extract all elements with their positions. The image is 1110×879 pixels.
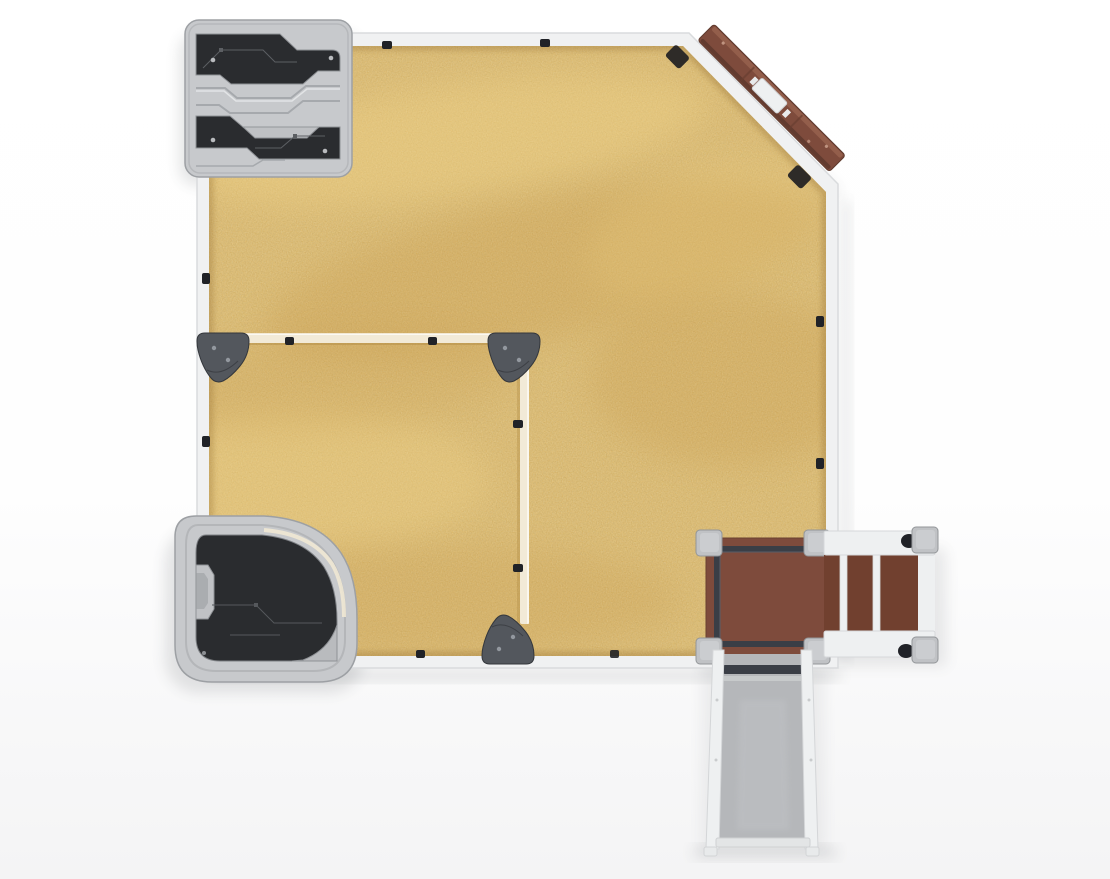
partition-v-shade xyxy=(517,338,520,624)
panel-rivet-dot xyxy=(202,651,206,655)
slide xyxy=(704,650,819,856)
steps-tread-area xyxy=(824,555,920,631)
slide-rail-screw xyxy=(808,699,811,702)
access-steps xyxy=(824,527,938,663)
slide-foot xyxy=(806,847,819,856)
slide-entry-lip xyxy=(721,676,805,681)
panel-rivet-dot xyxy=(211,138,216,143)
cap-screw-dot xyxy=(511,635,515,639)
wall-clip xyxy=(816,316,824,327)
cap-screw-dot xyxy=(226,358,230,362)
quarter-play-panel-bottom-left xyxy=(175,516,357,682)
wall-clip xyxy=(513,564,523,572)
panel-rivet-dot xyxy=(211,58,216,63)
panel-trace-node xyxy=(254,603,258,607)
slide-rail-screw xyxy=(715,759,718,762)
platform xyxy=(696,530,830,664)
partition-horizontal xyxy=(214,334,496,343)
wall-clip xyxy=(513,420,523,428)
wall-clip xyxy=(428,337,437,345)
steps-divider xyxy=(873,555,880,631)
wall-clip xyxy=(202,436,210,447)
slide-foot xyxy=(704,847,717,856)
wall-clip xyxy=(382,41,392,49)
panel-trace-node xyxy=(293,134,297,138)
cap-screw-dot xyxy=(497,647,501,651)
wall-clip xyxy=(540,39,550,47)
play-panel-top-left xyxy=(185,20,352,177)
cap-screw-dot xyxy=(503,346,507,350)
deck-post-top xyxy=(700,533,719,552)
panel-trace-node xyxy=(219,48,223,52)
cap-screw-dot xyxy=(212,346,216,350)
render-stage xyxy=(0,0,1110,879)
wall-clip xyxy=(285,337,294,345)
wall-clip xyxy=(816,458,824,469)
steps-end-plate xyxy=(918,555,935,631)
panel-rivet-dot xyxy=(329,56,334,61)
wall-clip xyxy=(416,650,425,658)
steps-post-top xyxy=(916,530,935,549)
slide-sheen xyxy=(737,700,789,830)
panel-left-notch-inner xyxy=(196,573,208,609)
partition-v-highlight xyxy=(527,338,529,624)
slide-rail-screw xyxy=(810,759,813,762)
wall-clip xyxy=(610,650,619,658)
wall-clip xyxy=(202,273,210,284)
panel-rivet-dot xyxy=(323,149,328,154)
playground-render xyxy=(0,0,1110,879)
slide-rail-screw xyxy=(716,699,719,702)
steps-divider xyxy=(840,555,847,631)
slide-entry-bar xyxy=(722,665,804,674)
cap-screw-dot xyxy=(517,358,521,362)
partition-h-highlight xyxy=(214,333,496,335)
slide-end-lip xyxy=(716,838,810,847)
steps-post-top xyxy=(916,640,935,659)
